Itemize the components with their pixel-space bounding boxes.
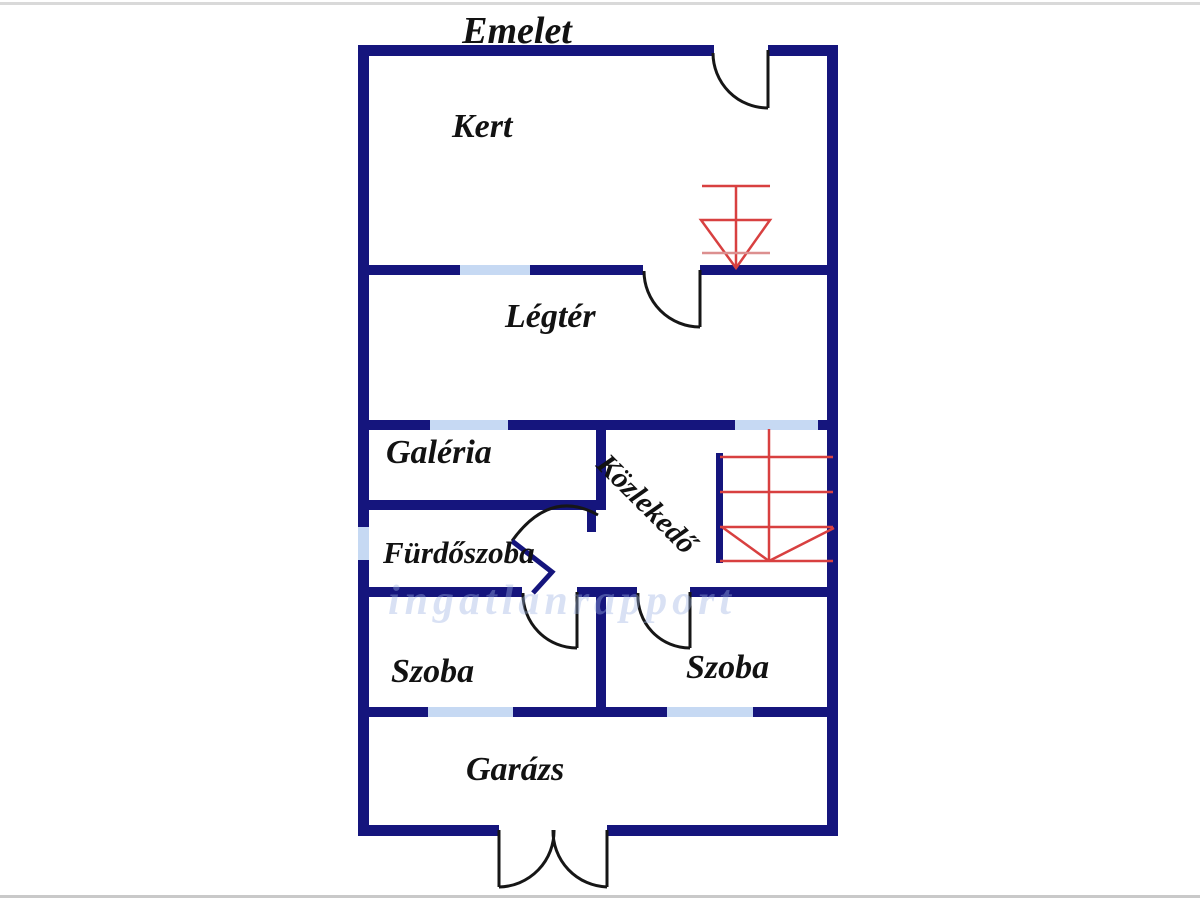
room-label-galeria: Galéria — [386, 436, 492, 470]
window-marker — [667, 707, 753, 717]
wall-segment — [358, 265, 460, 275]
double-door — [499, 830, 607, 887]
room-label-legter: Légtér — [505, 300, 596, 334]
room-label-furdoszoba: Fürdőszoba — [383, 537, 535, 568]
floorplan-canvas: Emelet Kert Légtér Galéria Közlekedő Für… — [0, 0, 1200, 900]
wall-segment — [818, 420, 838, 430]
wall-segment — [358, 45, 369, 527]
room-label-szoba-right: Szoba — [686, 651, 769, 685]
wall-segment — [358, 560, 369, 836]
image-bottom-edge — [0, 895, 1200, 898]
wall-segment — [596, 587, 606, 717]
wall-segment — [513, 707, 667, 717]
door-swing-arc — [713, 50, 768, 108]
floor-title: Emelet — [462, 12, 572, 50]
room-label-szoba-left: Szoba — [391, 655, 474, 689]
door-arc — [553, 830, 607, 887]
staircase — [720, 429, 834, 561]
window-marker — [428, 707, 513, 717]
wall-segment — [753, 707, 838, 717]
door-swing-arc — [644, 270, 700, 327]
wall-segment — [530, 265, 643, 275]
floorplan-drawing — [0, 0, 1200, 900]
image-top-edge — [0, 2, 1200, 5]
stair-diagonal — [769, 528, 834, 561]
door-swing-arc — [638, 592, 690, 648]
room-label-garazs: Garázs — [466, 753, 564, 787]
wall-segment — [690, 587, 838, 597]
door-arc — [523, 593, 577, 648]
stair-diagonal — [722, 527, 769, 561]
window-marker — [735, 420, 818, 430]
door-arc — [638, 593, 690, 648]
wall-segment — [577, 587, 637, 597]
stair-direction-arrow — [701, 186, 770, 268]
wall-segment — [358, 420, 430, 430]
wall-segment — [716, 453, 723, 563]
wall-segment — [700, 265, 838, 275]
window-marker — [358, 527, 369, 560]
wall-segment — [358, 825, 499, 836]
wall-segment — [358, 587, 522, 597]
door-arc — [644, 271, 700, 327]
wall-segment — [358, 707, 428, 717]
door-arc — [713, 53, 768, 108]
window-marker — [460, 265, 530, 275]
wall-segment — [508, 420, 735, 430]
room-label-kert: Kert — [452, 110, 512, 144]
wall-segment — [827, 45, 838, 836]
door-arc — [499, 830, 554, 887]
window-marker — [430, 420, 508, 430]
door-swing-arc — [523, 592, 577, 648]
wall-segment — [607, 825, 838, 836]
